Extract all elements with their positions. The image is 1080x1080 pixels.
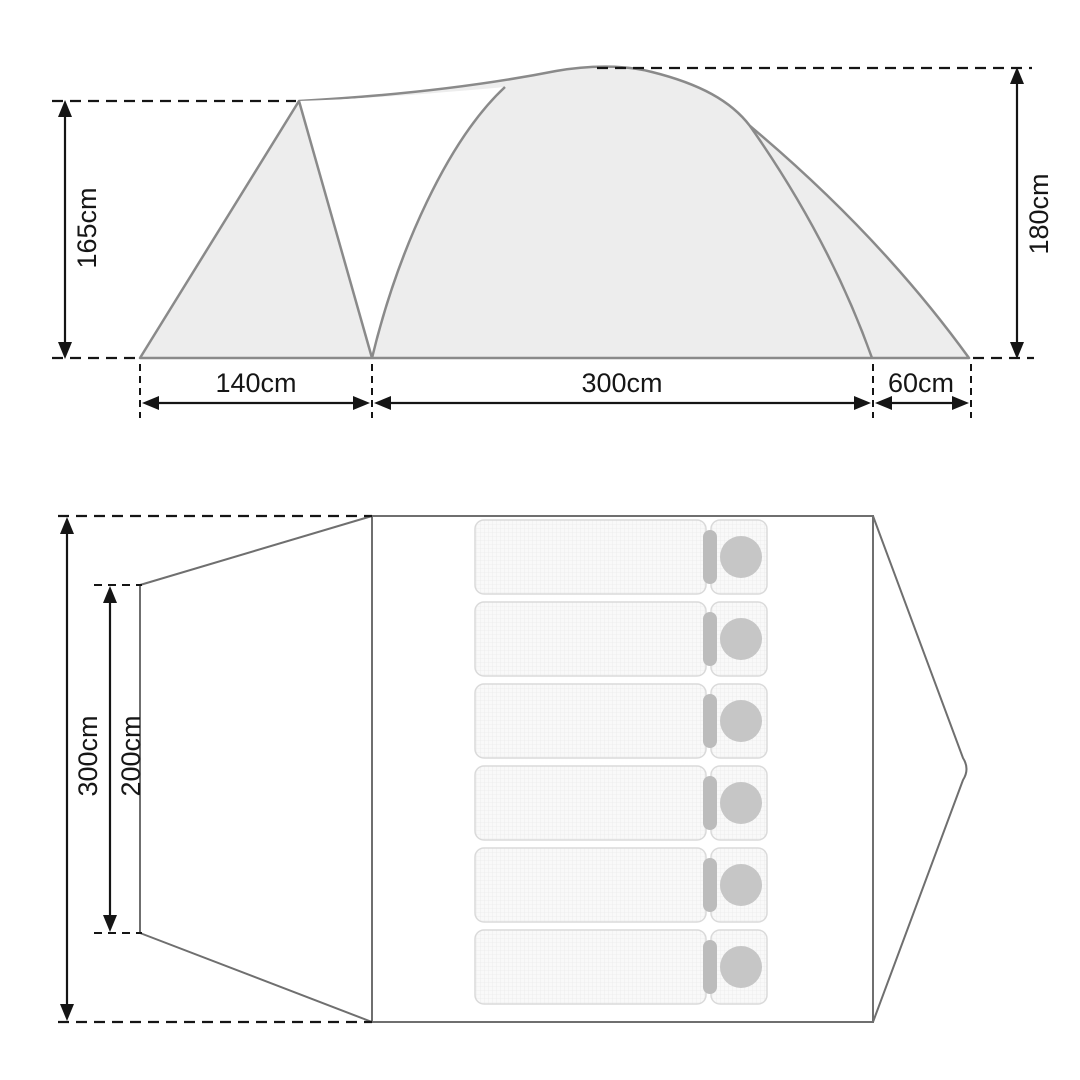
arrowhead-up [1010,67,1024,84]
arrowhead-down [58,342,72,359]
arrowhead-down [60,1004,74,1021]
tent-silhouette [140,67,969,358]
dimension-width-rear: 60cm [875,368,969,410]
floor-vestibule-outline [140,516,372,1022]
dimension-height-right: 180cm [1010,67,1054,359]
arrowhead-right [353,396,370,410]
arrowhead-left [875,396,892,410]
diagram-canvas: 165cm 180cm 140cm 300cm 60cm [0,0,1080,1080]
dimension-height-left: 165cm [58,100,102,359]
sleeping-bag-4 [475,766,767,840]
arrowhead-right [952,396,969,410]
arrowhead-up [103,586,117,603]
label-depth-total: 300cm [73,715,103,796]
floor-rear-point [873,516,967,1022]
arrowhead-down [103,915,117,932]
label-height-right: 180cm [1024,173,1054,254]
arrowhead-down [1010,342,1024,359]
arrowhead-left [142,396,159,410]
sleeping-bag-group [475,520,767,1004]
arrowhead-up [58,100,72,117]
floor-plan: 300cm 200cm [58,516,967,1022]
tent-dimension-diagram: 165cm 180cm 140cm 300cm 60cm [0,0,1080,1080]
label-width-vestibule: 140cm [215,368,296,398]
arrowhead-left [374,396,391,410]
label-height-left: 165cm [72,187,102,268]
dimension-width-body: 300cm [374,368,871,410]
arrowhead-up [60,517,74,534]
sleeping-bag-6 [475,930,767,1004]
dimension-width-vestibule: 140cm [142,368,370,410]
sleeping-bag-1 [475,520,767,594]
sleeping-bag-2 [475,602,767,676]
sleeping-bag-5 [475,848,767,922]
label-width-body: 300cm [581,368,662,398]
label-depth-inner: 200cm [116,715,146,796]
arrowhead-right [854,396,871,410]
side-view: 165cm 180cm 140cm 300cm 60cm [52,67,1054,418]
dimension-depth-total: 300cm [60,517,103,1021]
sleeping-bag-3 [475,684,767,758]
label-width-rear: 60cm [888,368,954,398]
